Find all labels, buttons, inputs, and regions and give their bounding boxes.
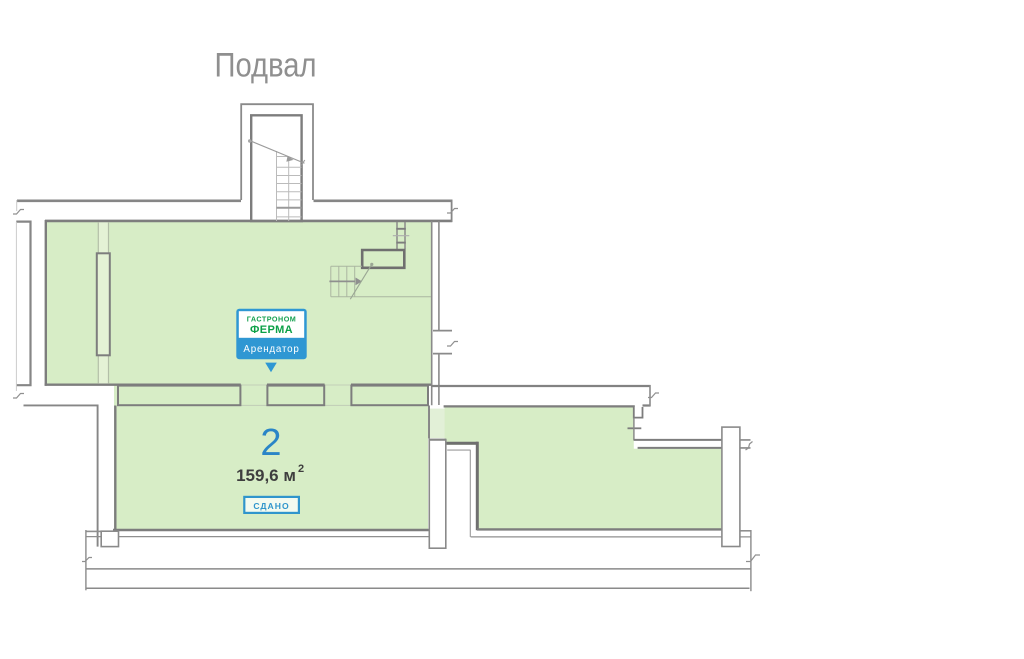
svg-text:2: 2: [298, 463, 304, 475]
svg-text:СДАНО: СДАНО: [253, 501, 289, 511]
svg-text:Арендатор: Арендатор: [243, 344, 299, 355]
svg-text:159,6 м: 159,6 м: [236, 466, 296, 485]
svg-text:2: 2: [260, 422, 281, 464]
svg-text:Подвал: Подвал: [215, 47, 317, 85]
svg-text:ФЕРМА: ФЕРМА: [250, 324, 293, 336]
svg-text:ГАСТРОНОМ: ГАСТРОНОМ: [247, 314, 297, 323]
